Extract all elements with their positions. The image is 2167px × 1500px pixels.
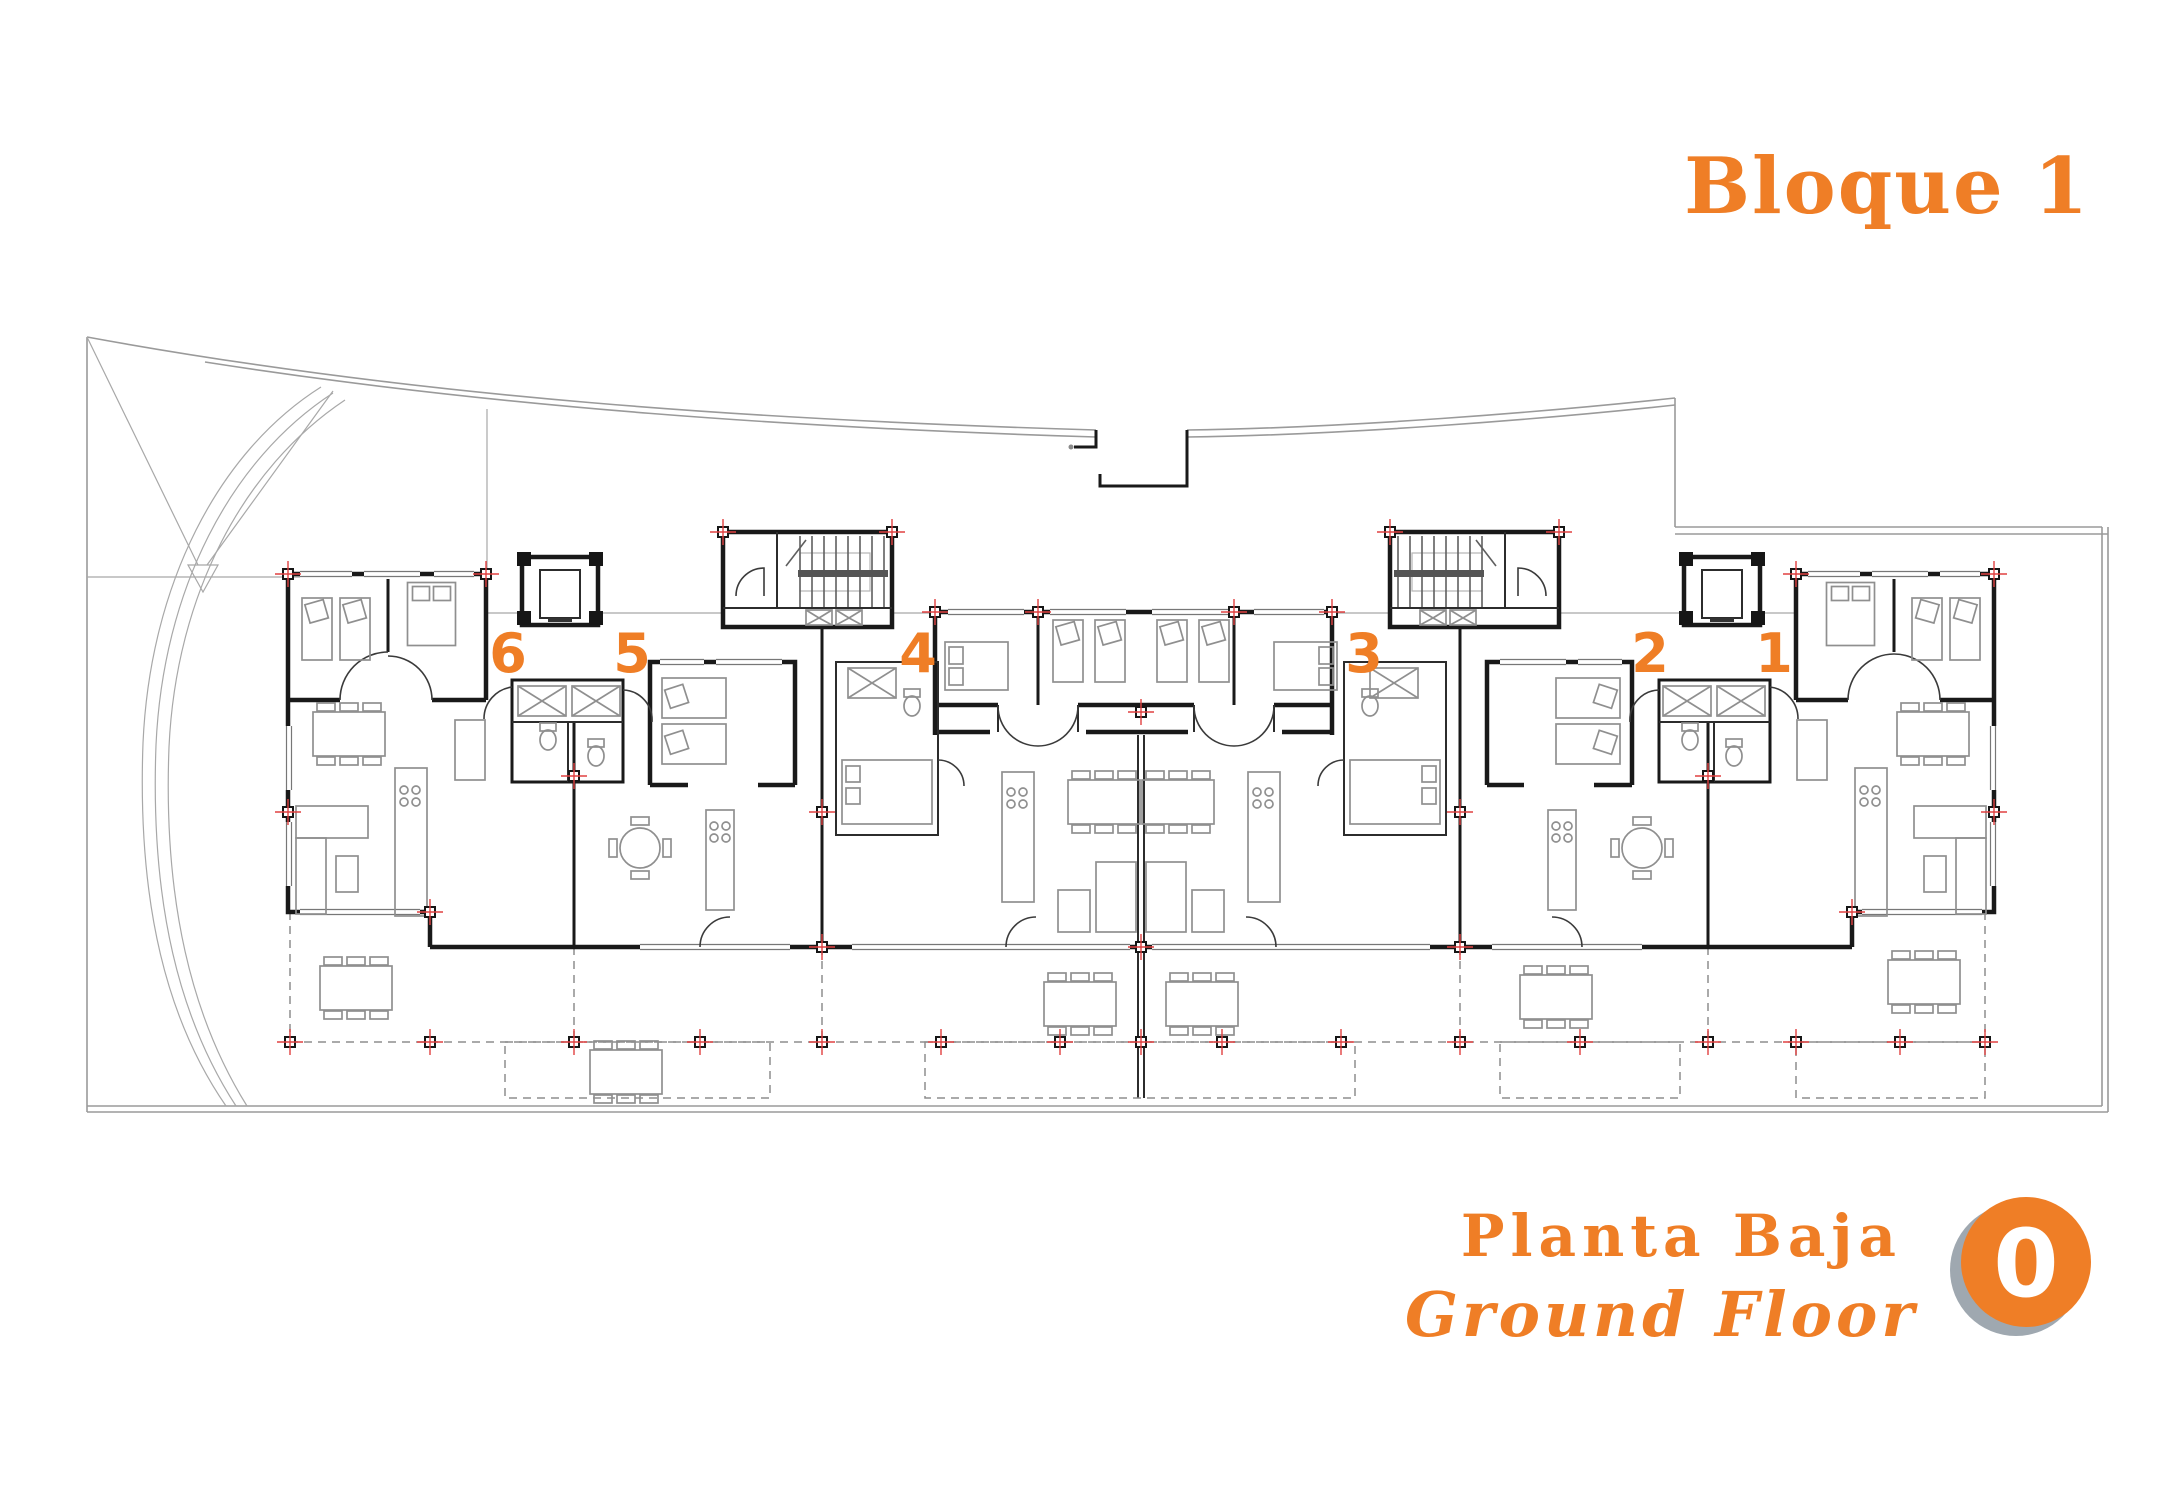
stair-core-left [723,532,892,627]
unit-label-2: 2 [1631,622,1669,685]
stair-core-right [1390,532,1559,627]
site-boundary [87,337,2108,1112]
furniture [296,583,1986,1104]
badge-number: 0 [1993,1210,2058,1319]
unit-label-6: 6 [489,622,527,685]
elevator-core-right [1679,552,1765,625]
unit-label-1: 1 [1755,622,1793,685]
elevator-core-left [517,552,603,625]
access-road [142,387,345,1106]
floor-caption: Planta Baja Ground Floor [1405,1202,1918,1351]
unit-label-4: 4 [899,622,937,685]
column-markers [275,519,2007,1055]
building-walls [288,574,1994,947]
unit-label-5: 5 [613,622,651,685]
unit-label-3: 3 [1345,622,1383,685]
floor-badge: 0 [1950,1197,2091,1336]
floor-label-en: Ground Floor [1405,1278,1918,1351]
block-title: Bloque 1 [1684,141,2090,232]
floor-label-es: Planta Baja [1461,1202,1902,1270]
floor-plan-canvas: 6 5 4 3 2 1 Bloque 1 Planta Baja Ground … [0,0,2167,1500]
unit-labels: 6 5 4 3 2 1 [489,622,1793,685]
